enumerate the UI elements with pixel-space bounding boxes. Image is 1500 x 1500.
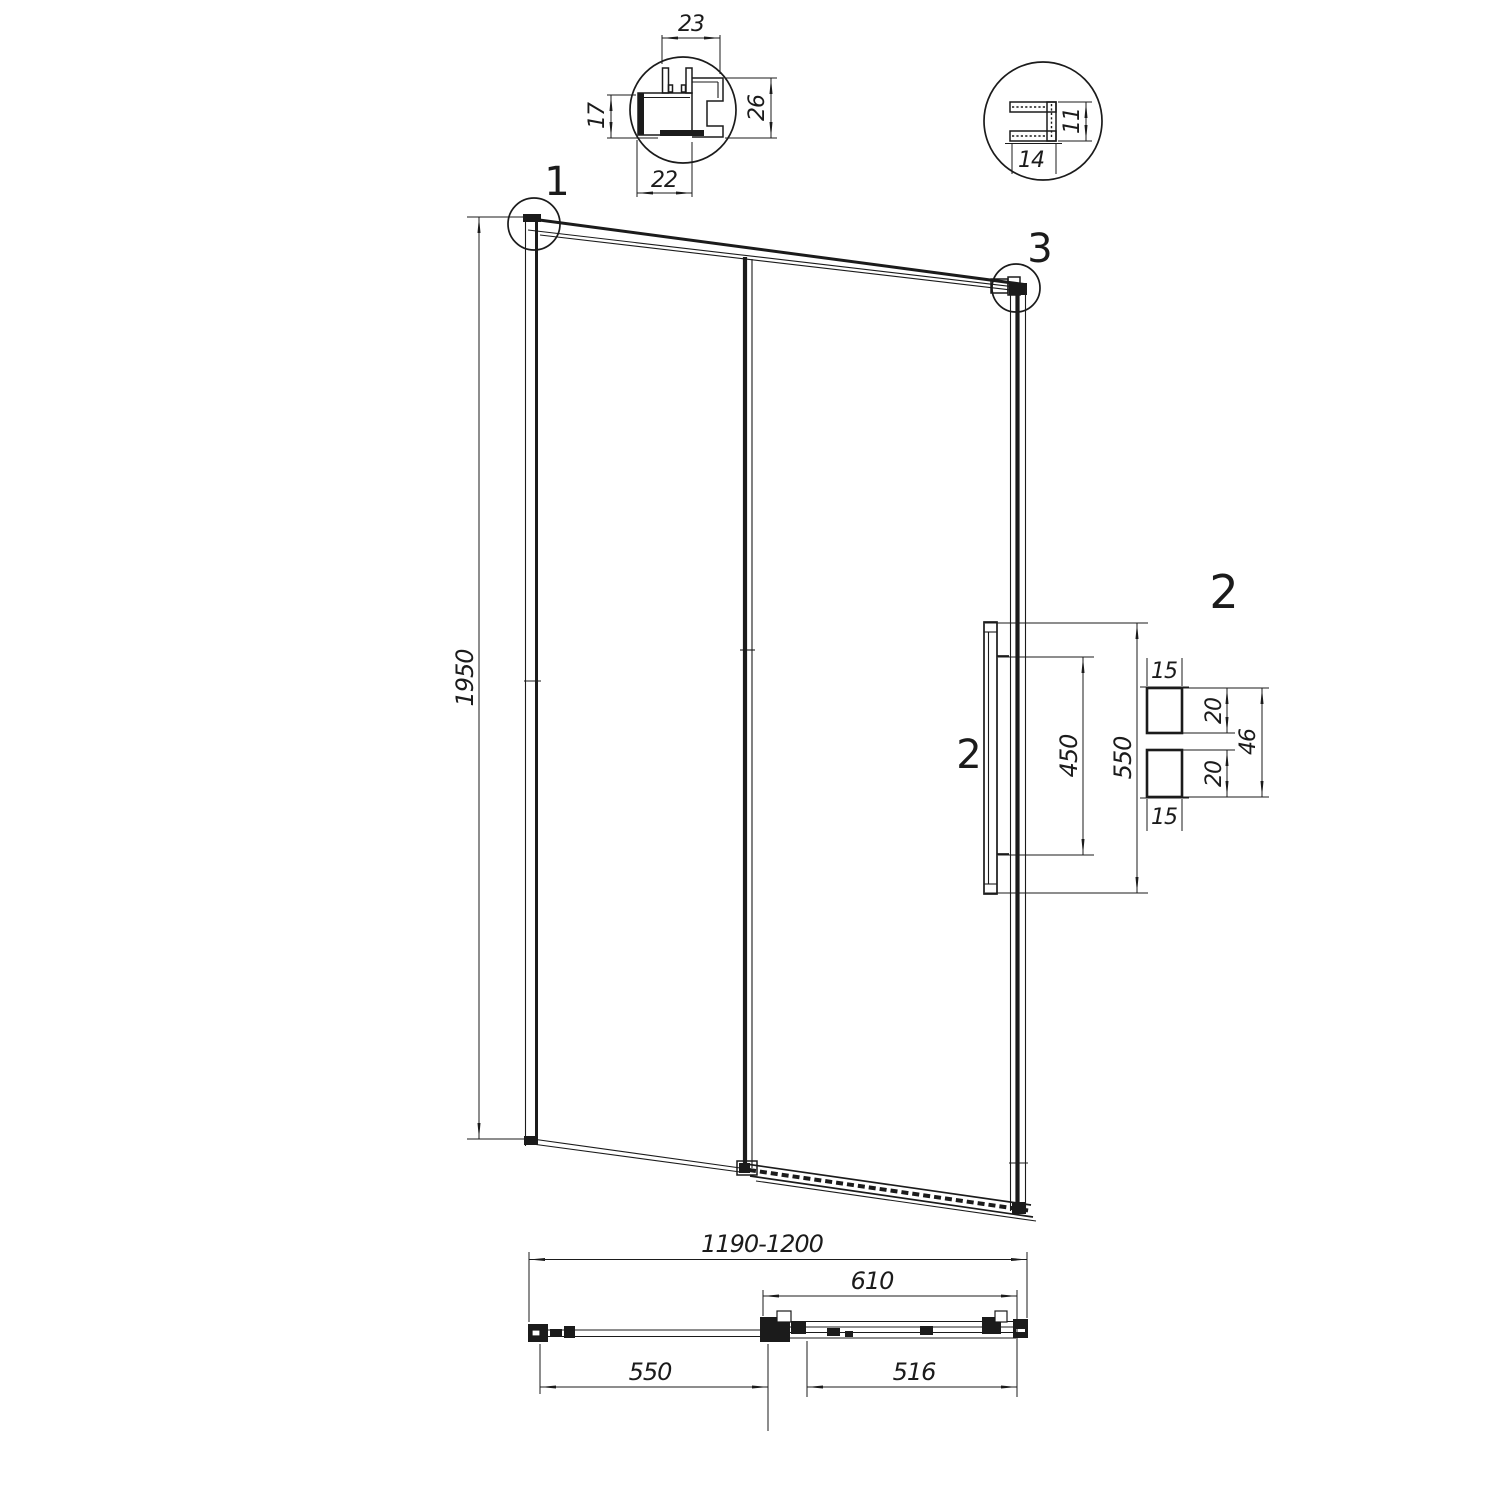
dim-11-label: 11: [1060, 108, 1085, 134]
dim-550-label: 550: [629, 1358, 673, 1386]
dim-plan-fixed-panel: 550: [540, 1344, 768, 1431]
dim-overall-label: 1190-1200: [701, 1230, 824, 1258]
callout-2-pointer: 2: [956, 732, 981, 778]
door-handle: [984, 622, 1009, 894]
dim-plan-overall: 1190-1200: [529, 1230, 1027, 1322]
callout-1: 1: [508, 159, 570, 250]
dim-14-label: 14: [1018, 148, 1044, 173]
dim-450-label: 450: [1055, 734, 1083, 778]
bottom-roller-carriage: [737, 1161, 757, 1175]
right-door-stile: [1009, 283, 1028, 1213]
bottom-rail-fixed: [536, 1140, 744, 1173]
dim-15top-label: 15: [1151, 659, 1177, 684]
plan-view: 1190-1200 610 550 516: [528, 1230, 1028, 1431]
left-wall-profile: [523, 214, 541, 1146]
dim-handle-top-cap: 15: [1140, 658, 1189, 687]
dim-elevation-height: 1950: [451, 217, 534, 1139]
dim-516-label: 516: [893, 1358, 937, 1386]
dim-plan-glass-panel: 516: [807, 1341, 1017, 1397]
dim-20a-label: 20: [1202, 698, 1227, 724]
detail-glass-profile: 11 14: [984, 62, 1102, 180]
elevation-view: 1950 1 3: [451, 159, 1053, 1221]
dim-handle-knobs: 20 20 46: [1183, 688, 1269, 797]
wall-profile-section: [638, 68, 723, 137]
dim-15bot-label: 15: [1151, 805, 1177, 830]
callout-3: 3: [992, 226, 1053, 312]
dim-1950-label: 1950: [451, 649, 479, 707]
dim-20b-label: 20: [1202, 761, 1227, 787]
dim-glass-height: 11: [1058, 102, 1092, 141]
dim-handle-bottom-cap: 15: [1140, 798, 1189, 831]
callout-1-label: 1: [544, 159, 569, 205]
bottom-rail-sliding: [746, 1164, 1036, 1221]
dim-handle-length: 450 550: [985, 623, 1148, 893]
top-rail: [528, 219, 1024, 296]
dim-550v-label: 550: [1109, 736, 1137, 780]
middle-divider: [740, 257, 755, 1168]
detail-wall-profile: 23 17 26 22: [585, 12, 777, 197]
dim-glass-width: 14: [1005, 143, 1062, 174]
dim-17-label: 17: [585, 102, 610, 129]
dim-23-label: 23: [678, 12, 704, 37]
callout-3-label: 3: [1027, 226, 1052, 272]
detail-handle: 2 2 450 550 15 15: [956, 565, 1269, 893]
drawing-page: 1950 1 3: [0, 0, 1500, 1500]
dim-22-label: 22: [651, 168, 677, 193]
dim-46-label: 46: [1236, 728, 1261, 755]
glass-profile-section: [1010, 102, 1056, 141]
handle-cross-section: [1147, 688, 1182, 797]
dim-610-label: 610: [851, 1267, 895, 1295]
dim-26-label: 26: [745, 94, 770, 121]
shower-door-technical-drawing: 1950 1 3: [0, 0, 1500, 1500]
dim-wall-side-height: 17: [585, 95, 658, 138]
dim-wall-bottom-width: 22: [637, 140, 692, 197]
callout-2-title: 2: [1209, 565, 1238, 619]
